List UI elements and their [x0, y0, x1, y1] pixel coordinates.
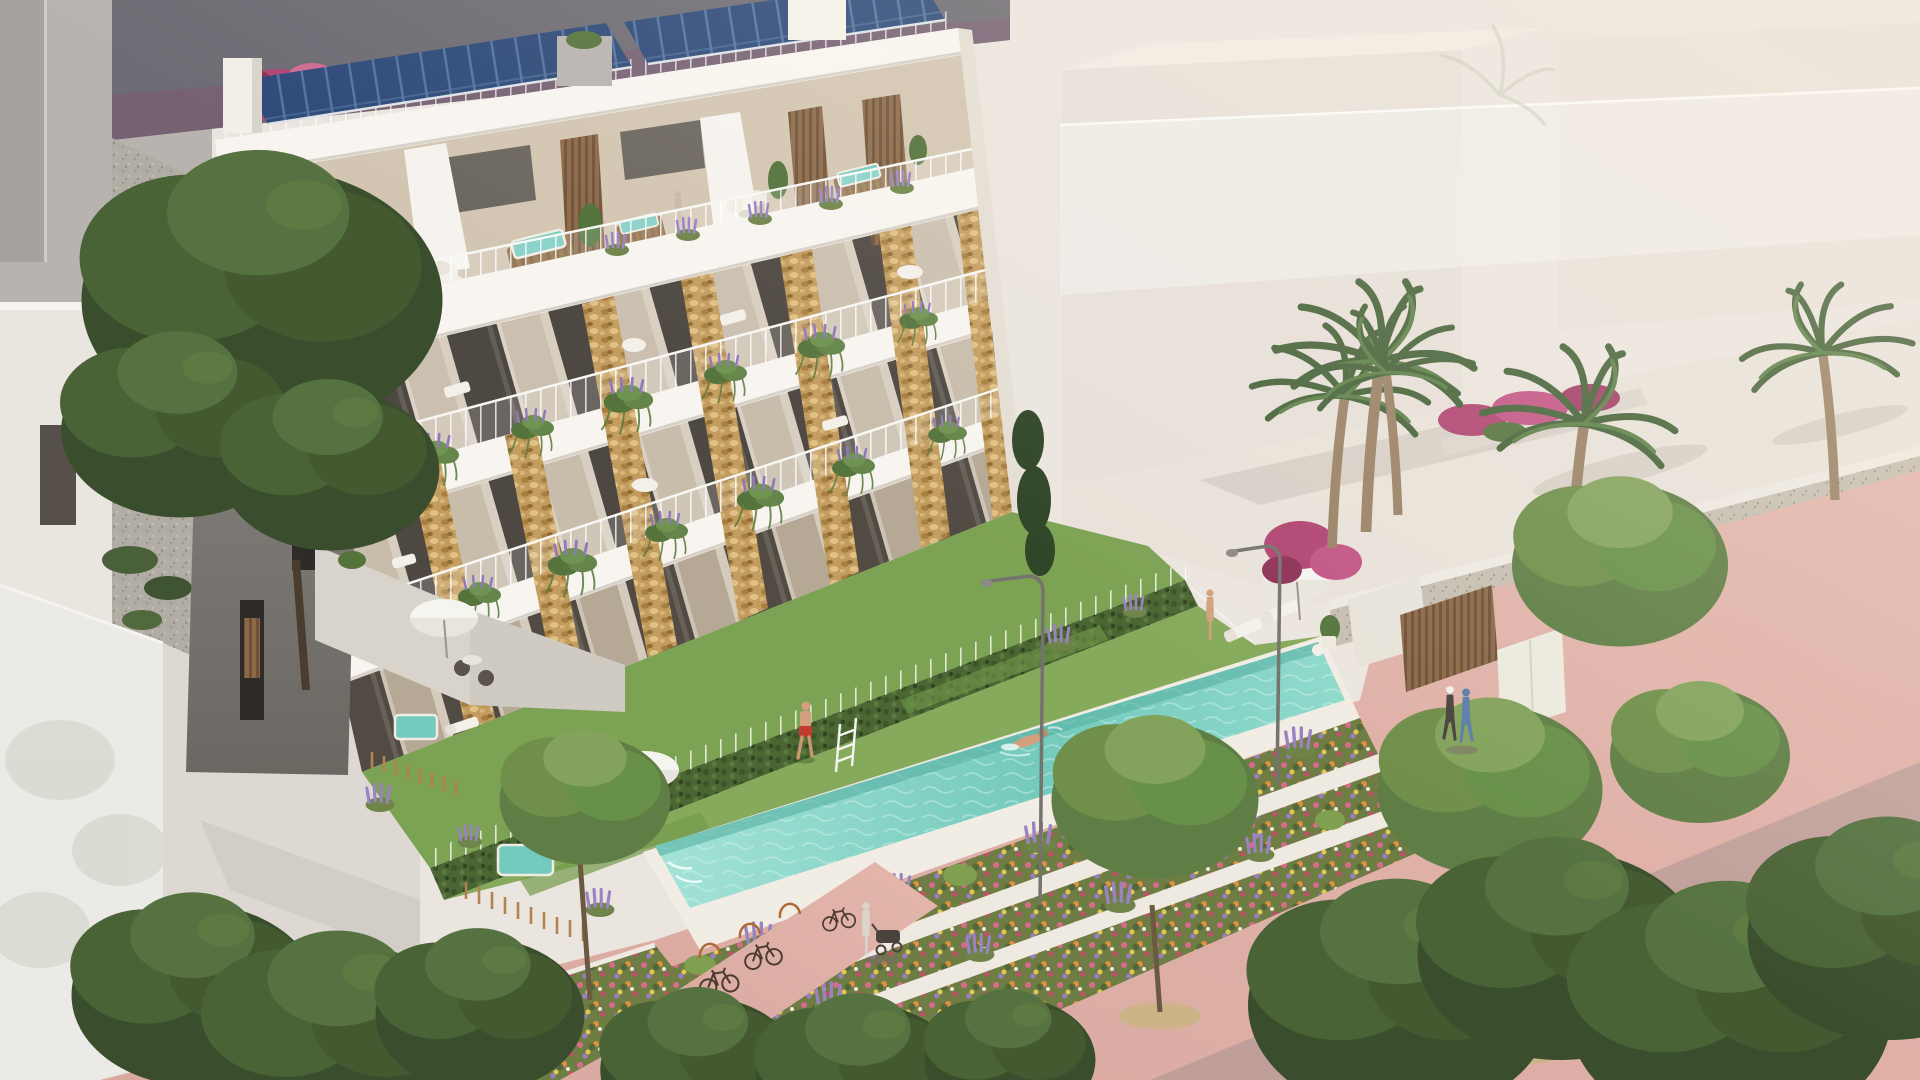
light-overlay — [0, 0, 1920, 1080]
architectural-rendering: architectural-rendering — [0, 0, 1920, 1080]
render-canvas — [0, 0, 1920, 1080]
